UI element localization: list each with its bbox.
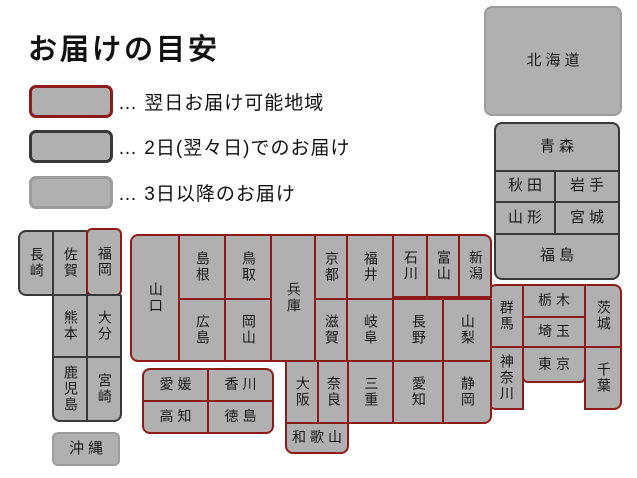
prefecture-label-miyazaki: 宮崎 xyxy=(96,373,112,405)
prefecture-okinawa: 沖縄 xyxy=(52,432,120,466)
prefecture-label-miyagi: 宮城 xyxy=(566,210,608,227)
prefecture-label-tochigi: 栃木 xyxy=(534,293,574,309)
prefecture-tokushima: 徳島 xyxy=(207,400,274,434)
prefecture-hiroshima: 広島 xyxy=(178,298,226,362)
prefecture-label-ehime: 愛媛 xyxy=(156,377,196,393)
prefecture-label-ibaraki: 茨城 xyxy=(595,300,611,332)
prefecture-mie: 三重 xyxy=(347,360,394,424)
prefecture-label-yamanashi: 山梨 xyxy=(459,314,475,346)
prefecture-label-kyoto: 京都 xyxy=(323,251,339,283)
prefecture-label-fukuoka: 福岡 xyxy=(96,246,112,278)
prefecture-label-kumamoto: 熊本 xyxy=(62,310,78,342)
prefecture-osaka: 大阪 xyxy=(285,360,319,424)
prefecture-ibaraki: 茨城 xyxy=(584,284,622,348)
prefecture-label-oita: 大分 xyxy=(96,310,112,342)
prefecture-wakayama: 和歌山 xyxy=(285,422,349,454)
prefecture-shizuoka: 静岡 xyxy=(442,360,492,424)
prefecture-label-aichi: 愛知 xyxy=(410,376,426,408)
prefecture-label-osaka: 大阪 xyxy=(294,376,310,408)
prefecture-nara: 奈良 xyxy=(317,360,349,424)
prefecture-yamaguchi: 山口 xyxy=(130,234,180,362)
prefecture-fukushima: 福島 xyxy=(494,233,620,280)
prefecture-kyoto: 京都 xyxy=(314,234,348,300)
prefecture-yamanashi: 山梨 xyxy=(442,298,492,362)
prefecture-label-saitama: 埼玉 xyxy=(534,324,574,340)
prefecture-kochi: 高知 xyxy=(142,400,209,434)
prefecture-gifu: 岐阜 xyxy=(346,298,394,362)
prefecture-label-tottori: 鳥取 xyxy=(240,251,256,283)
prefecture-label-saga: 佐賀 xyxy=(62,247,78,279)
prefecture-label-yamaguchi: 山口 xyxy=(147,282,163,314)
prefecture-label-wakayama: 和歌山 xyxy=(288,430,346,446)
prefecture-chiba: 千葉 xyxy=(584,346,622,410)
prefecture-label-nara: 奈良 xyxy=(325,376,341,408)
prefecture-label-toyama: 富山 xyxy=(435,250,451,282)
prefecture-kumamoto: 熊本 xyxy=(52,294,88,358)
prefecture-label-gunma: 群馬 xyxy=(498,300,514,332)
prefecture-label-shizuoka: 静岡 xyxy=(459,376,475,408)
prefecture-yamagata: 山形 xyxy=(494,201,556,235)
prefecture-label-hyogo: 兵庫 xyxy=(285,282,301,314)
japan-map: 北海道青森秋田岩手山形宮城福島群馬栃木埼玉茨城神奈川東京千葉長崎佐賀福岡熊本大分… xyxy=(0,0,637,478)
prefecture-label-fukui: 福井 xyxy=(362,251,378,283)
prefecture-label-gifu: 岐阜 xyxy=(362,314,378,346)
prefecture-saitama: 埼玉 xyxy=(522,316,586,348)
prefecture-niigata: 新潟 xyxy=(458,234,492,298)
prefecture-label-hokkaido: 北海道 xyxy=(522,53,583,70)
prefecture-fukui: 福井 xyxy=(346,234,394,300)
prefecture-akita: 秋田 xyxy=(494,170,556,203)
prefecture-tottori: 鳥取 xyxy=(224,234,272,300)
prefecture-label-akita: 秋田 xyxy=(504,178,546,195)
prefecture-label-tokushima: 徳島 xyxy=(221,409,261,425)
prefecture-label-nagano: 長野 xyxy=(410,314,426,346)
prefecture-label-aomori: 青森 xyxy=(536,139,578,156)
prefecture-saga: 佐賀 xyxy=(52,230,88,296)
prefecture-toyama: 富山 xyxy=(426,234,460,298)
prefecture-ehime: 愛媛 xyxy=(142,368,209,402)
prefecture-okayama: 岡山 xyxy=(224,298,272,362)
prefecture-gunma: 群馬 xyxy=(488,284,524,348)
prefecture-miyazaki: 宮崎 xyxy=(86,356,122,422)
prefecture-label-kagoshima: 鹿児島 xyxy=(62,365,78,413)
prefecture-label-yamagata: 山形 xyxy=(504,210,546,227)
prefecture-label-okayama: 岡山 xyxy=(240,314,256,346)
prefecture-kagawa: 香川 xyxy=(207,368,274,402)
prefecture-fukuoka: 福岡 xyxy=(86,228,122,296)
prefecture-label-niigata: 新潟 xyxy=(467,250,483,282)
prefecture-kanagawa: 神奈川 xyxy=(488,346,524,410)
prefecture-label-kanagawa: 神奈川 xyxy=(498,354,514,402)
prefecture-label-shiga: 滋賀 xyxy=(323,314,339,346)
prefecture-label-shimane: 島根 xyxy=(194,251,210,283)
prefecture-label-okinawa: 沖縄 xyxy=(65,441,107,458)
prefecture-shiga: 滋賀 xyxy=(314,298,348,362)
prefecture-label-kochi: 高知 xyxy=(156,409,196,425)
prefecture-label-mie: 三重 xyxy=(363,376,379,408)
prefecture-aichi: 愛知 xyxy=(392,360,444,424)
prefecture-nagasaki: 長崎 xyxy=(18,230,54,296)
prefecture-tochigi: 栃木 xyxy=(522,284,586,318)
prefecture-label-hiroshima: 広島 xyxy=(194,314,210,346)
prefecture-hokkaido: 北海道 xyxy=(484,6,622,116)
prefecture-label-tokyo: 東京 xyxy=(534,357,574,373)
prefecture-label-kagawa: 香川 xyxy=(221,377,261,393)
prefecture-ishikawa: 石川 xyxy=(392,234,428,298)
prefecture-miyagi: 宮城 xyxy=(554,201,620,235)
prefecture-hyogo: 兵庫 xyxy=(270,234,316,362)
prefecture-label-iwate: 岩手 xyxy=(566,178,608,195)
delivery-estimate-infographic: お届けの目安 … 翌日お届け可能地域 … 2日(翌々日)でのお届け … 3日以降… xyxy=(0,0,637,478)
prefecture-shimane: 島根 xyxy=(178,234,226,300)
prefecture-oita: 大分 xyxy=(86,294,122,358)
prefecture-label-chiba: 千葉 xyxy=(595,362,611,394)
prefecture-nagano: 長野 xyxy=(392,298,444,362)
prefecture-label-nagasaki: 長崎 xyxy=(28,247,44,279)
prefecture-iwate: 岩手 xyxy=(554,170,620,203)
prefecture-kagoshima: 鹿児島 xyxy=(52,356,88,422)
prefecture-label-ishikawa: 石川 xyxy=(402,250,418,282)
prefecture-tokyo: 東京 xyxy=(522,346,586,383)
prefecture-label-fukushima: 福島 xyxy=(536,248,578,265)
prefecture-aomori: 青森 xyxy=(494,122,620,172)
